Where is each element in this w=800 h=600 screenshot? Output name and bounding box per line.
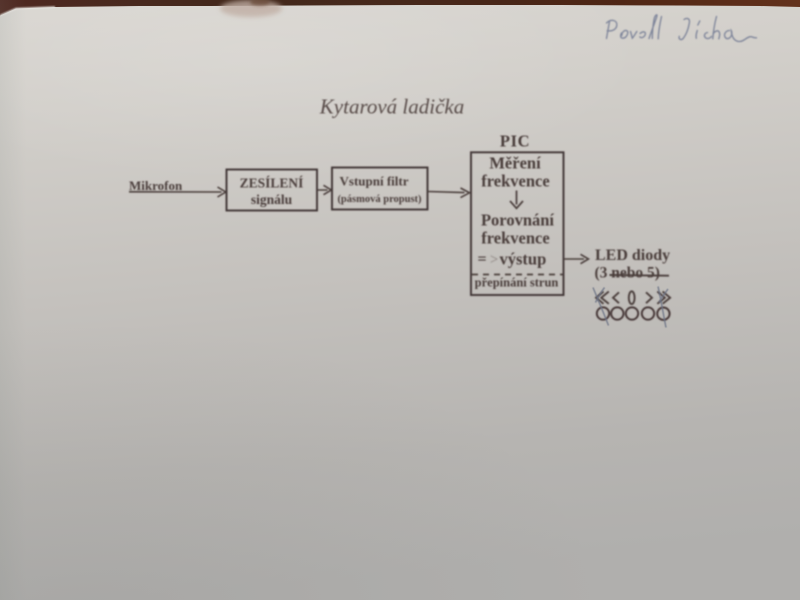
svg-text:>: > — [490, 252, 498, 268]
svg-text:frekvence: frekvence — [481, 229, 549, 248]
svg-text:LED diody: LED diody — [595, 247, 670, 264]
svg-text:Porovnání: Porovnání — [481, 211, 554, 230]
svg-text:Mikrofon: Mikrofon — [129, 178, 183, 193]
svg-text:výstup: výstup — [500, 250, 547, 269]
svg-text:Kytarová ladička: Kytarová ladička — [319, 95, 464, 119]
svg-text:přepínání strun: přepínání strun — [475, 276, 559, 290]
svg-text:(pásmová propust): (pásmová propust) — [337, 194, 422, 205]
svg-text:frekvence: frekvence — [481, 172, 549, 191]
svg-text:ZESÍLENÍ: ZESÍLENÍ — [240, 176, 304, 191]
svg-text:Měření: Měření — [489, 154, 541, 173]
svg-text:signálu: signálu — [251, 192, 293, 207]
svg-text:PIC: PIC — [500, 132, 530, 151]
svg-text:=: = — [478, 251, 487, 268]
svg-text:Vstupní filtr: Vstupní filtr — [340, 174, 409, 189]
svg-text:(3 nebo 5): (3 nebo 5) — [595, 265, 660, 282]
